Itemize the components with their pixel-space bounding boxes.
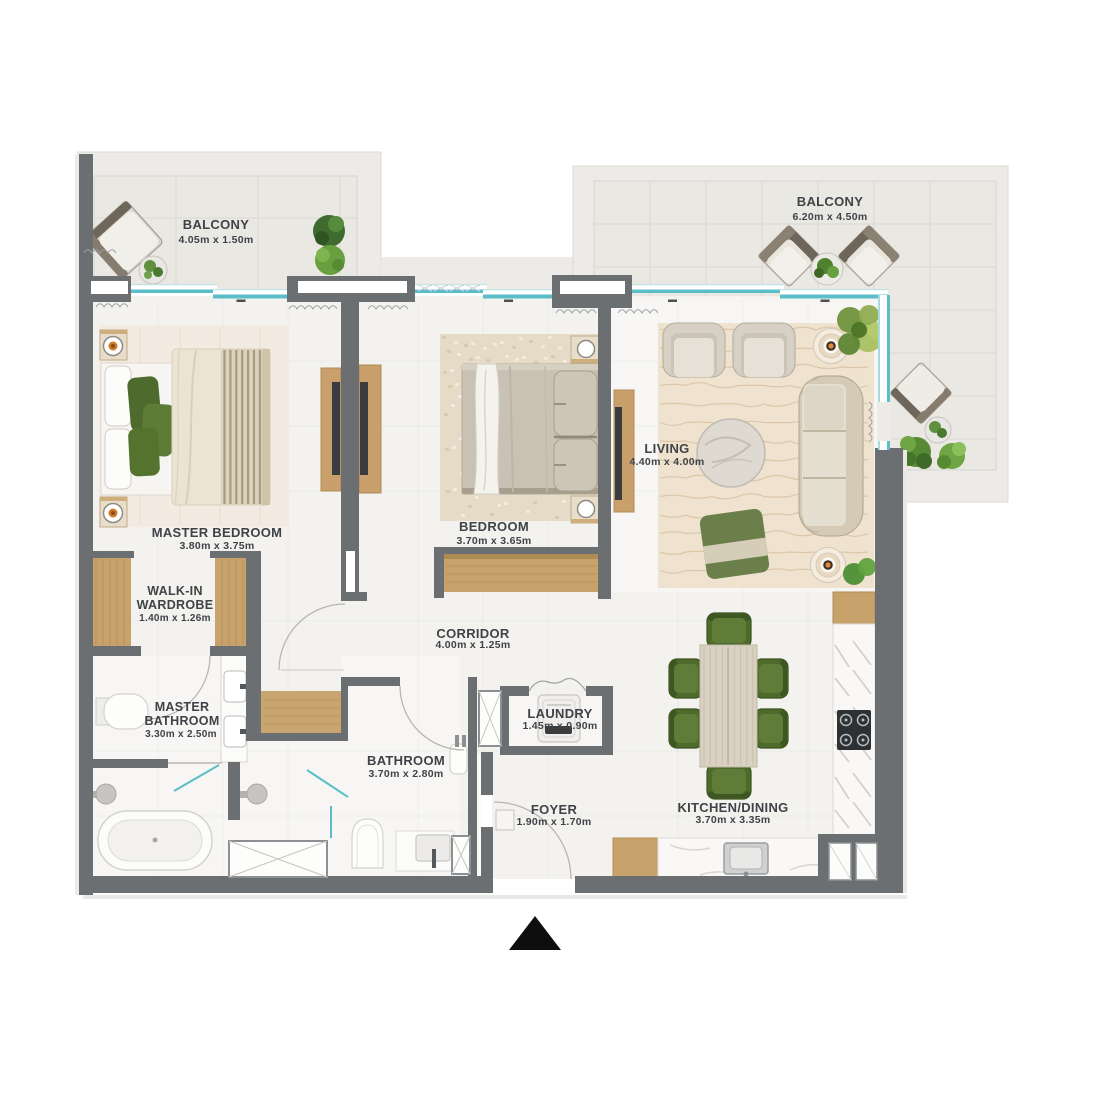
svg-text:6.20m x 4.50m: 6.20m x 4.50m [792,211,867,223]
svg-text:3.70m x 2.80m: 3.70m x 2.80m [368,768,443,780]
svg-text:WALK-IN: WALK-IN [147,584,203,598]
svg-text:4.00m x 1.25m: 4.00m x 1.25m [435,639,510,651]
svg-text:BATHROOM: BATHROOM [144,714,219,728]
svg-text:LIVING: LIVING [644,441,689,456]
svg-text:KITCHEN/DINING: KITCHEN/DINING [677,800,788,815]
svg-text:3.70m x 3.35m: 3.70m x 3.35m [695,814,770,826]
svg-text:1.90m x 1.70m: 1.90m x 1.70m [516,816,591,828]
svg-text:FOYER: FOYER [531,802,578,817]
svg-text:MASTER BEDROOM: MASTER BEDROOM [152,525,283,540]
svg-text:3.80m x 3.75m: 3.80m x 3.75m [179,540,254,552]
svg-text:1.40m x 1.26m: 1.40m x 1.26m [139,613,211,624]
svg-text:MASTER: MASTER [155,700,210,714]
svg-text:3.30m x 2.50m: 3.30m x 2.50m [145,729,217,740]
svg-text:1.45m x 0.90m: 1.45m x 0.90m [522,720,597,732]
svg-text:BATHROOM: BATHROOM [367,753,445,768]
svg-text:4.05m x 1.50m: 4.05m x 1.50m [178,234,253,246]
svg-text:BEDROOM: BEDROOM [459,519,529,534]
svg-text:LAUNDRY: LAUNDRY [527,706,592,721]
svg-text:4.40m x 4.00m: 4.40m x 4.00m [629,456,704,468]
svg-text:3.70m x 3.65m: 3.70m x 3.65m [456,535,531,547]
svg-text:WARDROBE: WARDROBE [137,598,214,612]
svg-text:BALCONY: BALCONY [797,194,863,209]
svg-text:BALCONY: BALCONY [183,217,249,232]
